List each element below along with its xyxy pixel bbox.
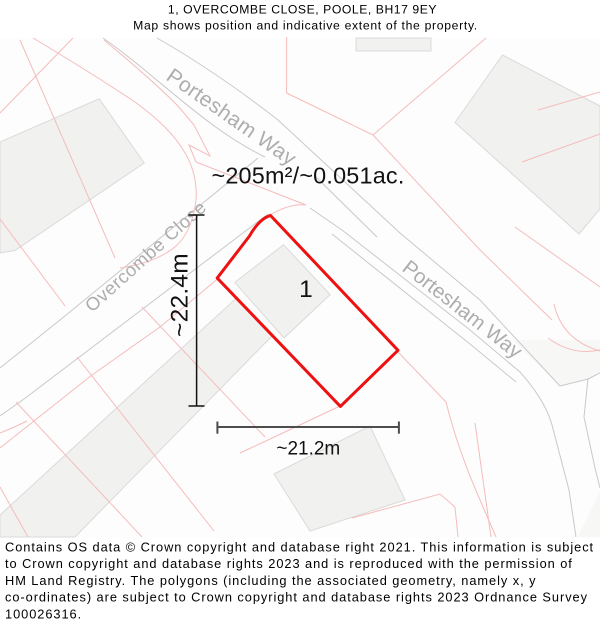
svg-text:~205m²/~0.051ac.: ~205m²/~0.051ac. — [211, 162, 404, 188]
svg-text:Contains OS data © Crown copyr: Contains OS data © Crown copyright and d… — [5, 539, 594, 554]
svg-text:1, OVERCOMBE CLOSE, POOLE, BH1: 1, OVERCOMBE CLOSE, POOLE, BH17 9EY — [168, 2, 437, 16]
svg-text:Map shows position and indicat: Map shows position and indicative extent… — [133, 19, 478, 33]
svg-text:~22.4m: ~22.4m — [167, 253, 194, 337]
svg-text:100026316.: 100026316. — [5, 607, 82, 622]
svg-text:1: 1 — [299, 276, 313, 303]
svg-text:HM Land Registry. The polygons: HM Land Registry. The polygons (includin… — [5, 573, 536, 588]
svg-text:to Crown copyright and databas: to Crown copyright and database rights 2… — [5, 556, 573, 571]
svg-text:~21.2m: ~21.2m — [276, 439, 340, 460]
svg-text:co-ordinates) are subject to C: co-ordinates) are subject to Crown copyr… — [5, 590, 588, 605]
